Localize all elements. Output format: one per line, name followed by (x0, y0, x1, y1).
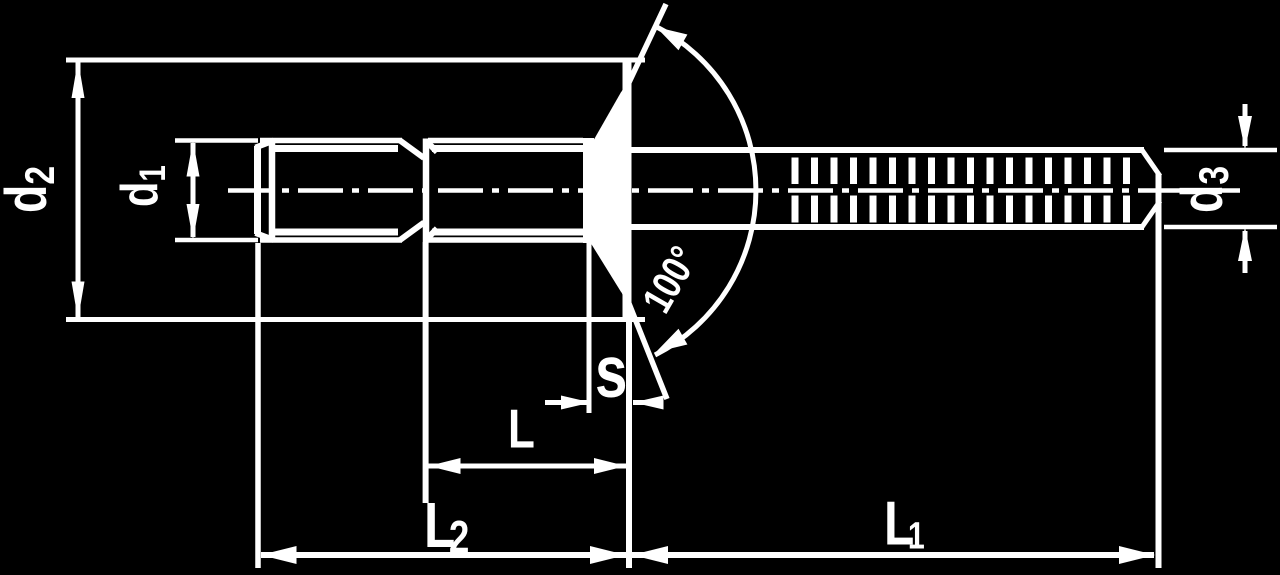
svg-text:L: L (508, 398, 535, 460)
svg-text:s: s (595, 332, 627, 414)
